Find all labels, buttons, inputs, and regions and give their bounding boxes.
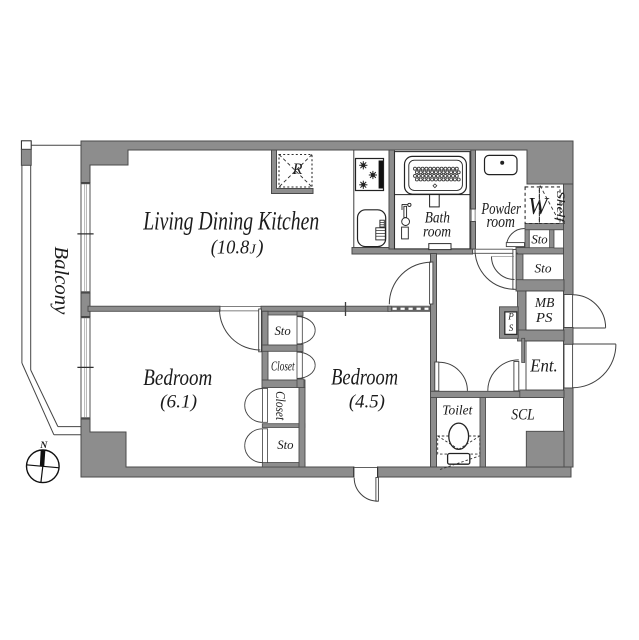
- svg-text:SCL: SCL: [511, 406, 535, 423]
- svg-text:(10.8: (10.8: [211, 238, 250, 259]
- svg-text:Closet: Closet: [271, 360, 295, 375]
- svg-text:room: room: [486, 212, 515, 231]
- svg-text:S: S: [509, 323, 514, 333]
- svg-text:Balcony: Balcony: [50, 246, 71, 314]
- svg-text:P: P: [507, 312, 514, 322]
- svg-text:Bedroom: Bedroom: [143, 365, 212, 391]
- svg-text:Toilet: Toilet: [442, 403, 473, 418]
- svg-text:(6.1): (6.1): [160, 391, 197, 412]
- svg-text:N: N: [39, 440, 48, 451]
- svg-text:Shelf: Shelf: [554, 191, 568, 224]
- svg-text:Sto: Sto: [274, 323, 291, 338]
- svg-text:Sto: Sto: [277, 437, 294, 452]
- svg-text:Living Dining Kitchen: Living Dining Kitchen: [142, 206, 319, 236]
- svg-text:room: room: [423, 223, 451, 240]
- svg-text:Closet: Closet: [272, 391, 287, 421]
- svg-text:MB: MB: [534, 295, 555, 310]
- svg-text:(4.5): (4.5): [349, 393, 385, 413]
- svg-text:Sto: Sto: [531, 232, 548, 247]
- svg-text:Ent.: Ent.: [529, 355, 557, 375]
- svg-text:PS: PS: [535, 310, 553, 325]
- svg-text:Sto: Sto: [535, 260, 552, 275]
- svg-text:): ): [256, 238, 264, 259]
- svg-text:J: J: [250, 243, 257, 258]
- svg-text:Bedroom: Bedroom: [331, 365, 398, 391]
- svg-text:R: R: [292, 161, 303, 178]
